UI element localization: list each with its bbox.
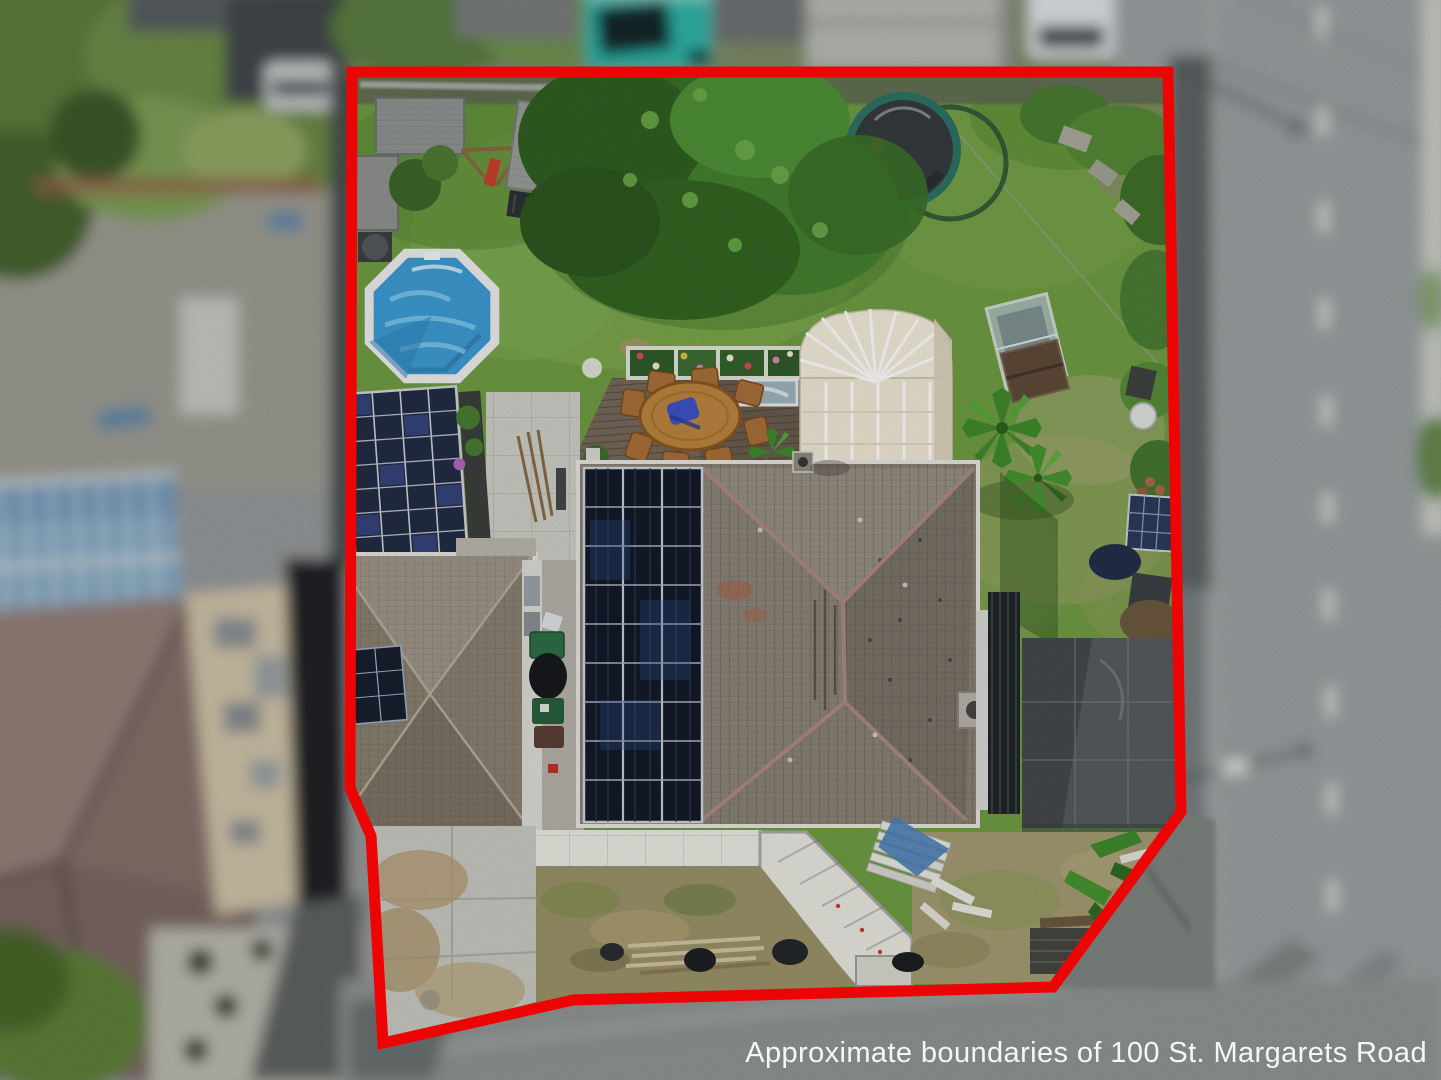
photo-grain <box>0 0 1441 1080</box>
caption: Approximate boundaries of 100 St. Margar… <box>745 1037 1427 1070</box>
aerial-photo: Approximate boundaries of 100 St. Margar… <box>0 0 1441 1080</box>
